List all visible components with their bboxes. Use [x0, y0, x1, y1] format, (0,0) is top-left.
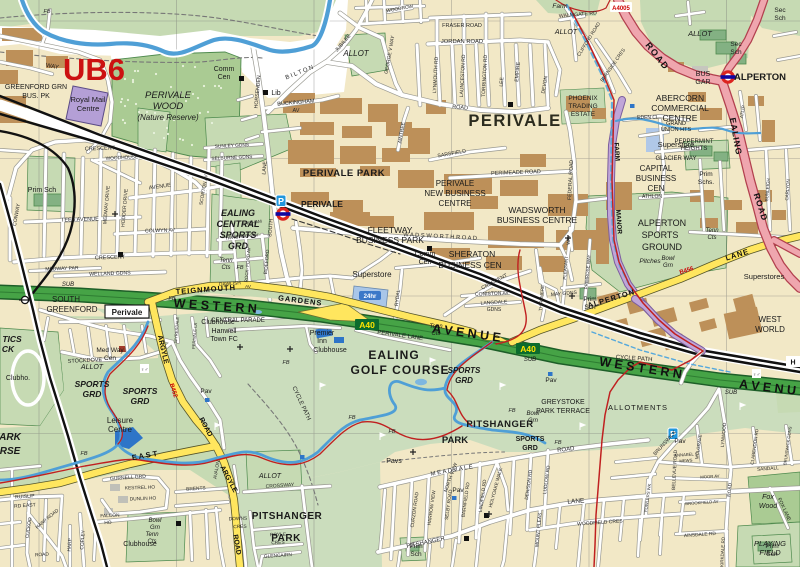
- svg-text:Comm: Comm: [214, 66, 235, 73]
- svg-text:Cts: Cts: [148, 539, 157, 545]
- svg-text:Premier: Premier: [310, 330, 335, 337]
- svg-text:PARK: PARK: [442, 435, 468, 446]
- svg-text:GLACIER WAY: GLACIER WAY: [655, 156, 696, 162]
- svg-text:WAY: WAY: [566, 235, 572, 245]
- svg-text:UB6: UB6: [63, 52, 125, 87]
- svg-text:Cen: Cen: [419, 259, 432, 266]
- svg-text:Bowl: Bowl: [526, 411, 540, 417]
- svg-text:ARK: ARK: [0, 432, 22, 443]
- svg-text:A40: A40: [359, 320, 375, 330]
- svg-text:Sch: Sch: [774, 15, 786, 22]
- svg-text:SPORTS: SPORTS: [75, 379, 110, 389]
- svg-text:MEWS: MEWS: [679, 458, 693, 464]
- svg-text:FB: FB: [348, 415, 355, 421]
- svg-text:SPORTS: SPORTS: [448, 366, 481, 375]
- svg-text:CENTRE: CENTRE: [439, 199, 472, 208]
- svg-text:Lib: Lib: [271, 90, 280, 97]
- svg-text:Fox: Fox: [762, 494, 774, 501]
- svg-text:Centre: Centre: [77, 104, 100, 113]
- svg-text:EALING: EALING: [221, 208, 255, 218]
- svg-text:Wood: Wood: [759, 503, 778, 510]
- svg-text:GRD: GRD: [131, 396, 150, 406]
- svg-text:LANE: LANE: [261, 160, 268, 175]
- svg-text:FB: FB: [236, 265, 243, 271]
- svg-text:Centre: Centre: [108, 425, 133, 434]
- svg-text:Med Way: Med Way: [96, 347, 124, 354]
- svg-text:A4005: A4005: [612, 6, 630, 12]
- svg-text:ALLOT: ALLOT: [80, 364, 104, 371]
- svg-text:Pav: Pav: [545, 377, 557, 384]
- svg-text:GREYSTOKE: GREYSTOKE: [541, 399, 585, 406]
- svg-text:UNION HTS: UNION HTS: [661, 127, 692, 133]
- svg-text:GDNS: GDNS: [487, 307, 502, 313]
- svg-text:SHERATON: SHERATON: [449, 249, 495, 259]
- svg-text:Bowl: Bowl: [148, 518, 162, 524]
- svg-text:EALING: EALING: [368, 348, 419, 362]
- svg-text:Sch: Sch: [584, 304, 596, 311]
- svg-text:Grn: Grn: [150, 525, 161, 531]
- svg-text:SPORTS: SPORTS: [642, 230, 679, 240]
- svg-text:GRD: GRD: [522, 445, 538, 452]
- svg-text:Hanwell: Hanwell: [212, 328, 237, 335]
- svg-text:FB: FB: [168, 296, 175, 302]
- svg-text:H: H: [790, 360, 795, 367]
- svg-text:Pav: Pav: [200, 388, 212, 395]
- svg-text:GRD: GRD: [455, 376, 473, 385]
- svg-text:JORDAN ROAD: JORDAN ROAD: [441, 39, 483, 45]
- svg-text:Royal Mail: Royal Mail: [70, 95, 105, 104]
- svg-text:ALLOT: ALLOT: [342, 49, 369, 58]
- svg-text:ALLOT: ALLOT: [554, 29, 578, 36]
- svg-text:ROAD: ROAD: [726, 482, 733, 497]
- svg-text:Perivale: Perivale: [112, 308, 143, 317]
- svg-text:COMMERCIAL: COMMERCIAL: [651, 103, 709, 113]
- svg-text:WADSWORTH: WADSWORTH: [508, 205, 565, 215]
- svg-text:CENTRAL PARADE: CENTRAL PARADE: [211, 318, 265, 324]
- svg-text:Comm: Comm: [415, 251, 436, 258]
- svg-text:Bowl: Bowl: [661, 256, 675, 262]
- svg-text:Superstores: Superstores: [744, 272, 785, 281]
- svg-text:NEW BUSINESS: NEW BUSINESS: [424, 189, 485, 198]
- svg-text:GREENFORD: GREENFORD: [46, 305, 97, 314]
- svg-text:24hr: 24hr: [364, 294, 377, 300]
- svg-text:Town FC: Town FC: [210, 336, 238, 343]
- svg-text:PHOENIX: PHOENIX: [568, 95, 598, 102]
- svg-text:PLAYING: PLAYING: [754, 539, 786, 548]
- svg-text:(Nature Reserve): (Nature Reserve): [137, 113, 199, 122]
- svg-text:A40: A40: [520, 344, 536, 354]
- svg-text:Sec: Sec: [774, 7, 786, 14]
- svg-text:WEST: WEST: [758, 315, 781, 324]
- svg-text:♀♂: ♀♂: [753, 372, 761, 378]
- svg-text:ABERCORN: ABERCORN: [656, 93, 704, 103]
- svg-text:Cen: Cen: [218, 74, 231, 81]
- svg-text:KESTREL HO: KESTREL HO: [125, 484, 156, 491]
- svg-text:TICS: TICS: [2, 334, 22, 344]
- svg-text:Grn: Grn: [528, 418, 539, 424]
- svg-text:FB: FB: [43, 9, 50, 15]
- svg-text:FB: FB: [282, 360, 289, 366]
- svg-text:Schs.: Schs.: [698, 179, 714, 186]
- svg-text:FB: FB: [554, 440, 561, 446]
- svg-text:GRD: GRD: [83, 389, 102, 399]
- svg-text:BUSINESS CENTRE: BUSINESS CENTRE: [497, 215, 578, 225]
- svg-text:ALLOTMENTS: ALLOTMENTS: [608, 403, 668, 412]
- svg-text:PITSHANGER: PITSHANGER: [252, 511, 323, 522]
- svg-text:ALLOT: ALLOT: [258, 473, 282, 480]
- svg-text:FB: FB: [388, 429, 395, 435]
- svg-text:Prim Sch: Prim Sch: [28, 187, 57, 194]
- svg-text:SOUTH: SOUTH: [52, 295, 80, 304]
- svg-text:BUS: BUS: [696, 71, 711, 78]
- svg-text:PEPPERMINT: PEPPERMINT: [674, 139, 713, 145]
- svg-text:PERIVALE: PERIVALE: [301, 199, 343, 209]
- svg-text:Prim: Prim: [699, 171, 712, 178]
- svg-text:Farm: Farm: [552, 3, 568, 10]
- svg-text:PERIVALE PARK: PERIVALE PARK: [303, 168, 385, 179]
- svg-text:FALCON: FALCON: [100, 513, 120, 520]
- svg-text:Clubho.: Clubho.: [6, 375, 30, 382]
- svg-text:Cts: Cts: [432, 331, 441, 337]
- svg-text:Leisure: Leisure: [107, 416, 134, 425]
- svg-text:Superstore: Superstore: [352, 270, 392, 279]
- svg-text:Pitches: Pitches: [639, 258, 661, 265]
- svg-text:FRASER ROAD: FRASER ROAD: [442, 23, 482, 29]
- svg-text:LANE: LANE: [567, 497, 585, 505]
- svg-text:BUSINESS: BUSINESS: [636, 174, 676, 183]
- svg-text:GAR: GAR: [695, 79, 710, 86]
- svg-text:FARM: FARM: [612, 142, 620, 161]
- svg-text:RSE: RSE: [0, 446, 21, 457]
- svg-text:HEIGHTS: HEIGHTS: [681, 146, 708, 152]
- svg-text:FB: FB: [80, 451, 87, 457]
- svg-text:Tenn: Tenn: [705, 228, 719, 234]
- svg-text:ALLOT: ALLOT: [687, 29, 713, 38]
- svg-text:PARK TERRACE: PARK TERRACE: [536, 408, 590, 415]
- svg-text:CRESCENT: CRESCENT: [85, 145, 116, 152]
- svg-text:♀♂: ♀♂: [141, 367, 149, 373]
- svg-text:MEDWAY PAR: MEDWAY PAR: [45, 265, 79, 272]
- svg-text:AV: AV: [245, 284, 252, 290]
- svg-text:FB: FB: [508, 408, 515, 414]
- svg-text:Inn: Inn: [317, 338, 327, 345]
- svg-text:ALPERTON: ALPERTON: [638, 218, 686, 228]
- svg-text:Clubhouse: Clubhouse: [313, 347, 347, 354]
- svg-text:SUB: SUB: [524, 357, 536, 363]
- svg-text:SUB: SUB: [62, 282, 74, 288]
- svg-text:HO: HO: [104, 520, 112, 526]
- svg-text:ROAD: ROAD: [35, 551, 50, 558]
- svg-text:Cts: Cts: [222, 265, 231, 271]
- svg-text:ROYLE: ROYLE: [270, 532, 286, 539]
- svg-text:PERIVALE: PERIVALE: [468, 112, 561, 130]
- svg-text:SPORTS: SPORTS: [123, 386, 158, 396]
- svg-text:Sch: Sch: [730, 49, 742, 56]
- svg-text:Prim: Prim: [583, 296, 596, 303]
- svg-text:Pav: Pav: [674, 438, 686, 445]
- svg-text:GREENFORD GRN: GREENFORD GRN: [5, 84, 67, 91]
- svg-text:CAPITAL: CAPITAL: [640, 164, 673, 173]
- svg-text:Pav: Pav: [452, 487, 464, 494]
- svg-text:CEN: CEN: [648, 184, 665, 193]
- svg-text:DUNLIN HO: DUNLIN HO: [130, 496, 157, 503]
- svg-text:Sch: Sch: [410, 551, 422, 558]
- svg-text:BUSINESS CEN: BUSINESS CEN: [438, 260, 501, 270]
- svg-text:FIELD: FIELD: [759, 548, 781, 557]
- svg-text:PERIVALE: PERIVALE: [436, 179, 475, 188]
- svg-text:ESTATE: ESTATE: [571, 111, 596, 118]
- svg-text:LEE: LEE: [499, 76, 506, 87]
- svg-text:SUB: SUB: [725, 390, 737, 396]
- svg-text:EDEN CL: EDEN CL: [637, 115, 659, 121]
- svg-text:TRADING: TRADING: [568, 103, 597, 110]
- svg-text:CRESCENT: CRESCENT: [95, 254, 126, 261]
- svg-text:Tenn: Tenn: [219, 258, 233, 264]
- svg-text:Sec: Sec: [730, 41, 742, 48]
- svg-text:HARP: HARP: [66, 538, 73, 552]
- svg-text:ALPERTON: ALPERTON: [734, 72, 786, 83]
- svg-text:PITSHANGER: PITSHANGER: [466, 419, 533, 430]
- svg-text:WOOD: WOOD: [153, 101, 184, 112]
- svg-text:BUS. PK: BUS. PK: [22, 93, 50, 100]
- svg-text:Pavs: Pavs: [386, 458, 402, 465]
- svg-text:Grn: Grn: [663, 263, 674, 269]
- svg-text:GROUND: GROUND: [642, 242, 682, 252]
- svg-text:CRES: CRES: [271, 540, 285, 546]
- svg-text:Tenn: Tenn: [145, 532, 159, 538]
- svg-text:GOLF COURSE: GOLF COURSE: [350, 363, 449, 377]
- svg-text:Cen: Cen: [104, 355, 116, 362]
- svg-text:Tenn: Tenn: [429, 324, 443, 330]
- svg-text:COLWYN AV: COLWYN AV: [145, 227, 176, 234]
- svg-text:CRES: CRES: [233, 524, 247, 530]
- svg-text:ATHLON: ATHLON: [642, 194, 662, 200]
- svg-text:AV: AV: [293, 108, 300, 114]
- svg-text:Cts: Cts: [708, 235, 717, 241]
- svg-text:P: P: [278, 196, 284, 206]
- svg-text:CK: CK: [2, 344, 15, 354]
- svg-text:PERIVALE: PERIVALE: [145, 90, 192, 101]
- svg-text:DOWNS: DOWNS: [229, 516, 248, 523]
- svg-text:WORLD: WORLD: [755, 325, 785, 334]
- svg-text:SPORTS: SPORTS: [516, 436, 545, 443]
